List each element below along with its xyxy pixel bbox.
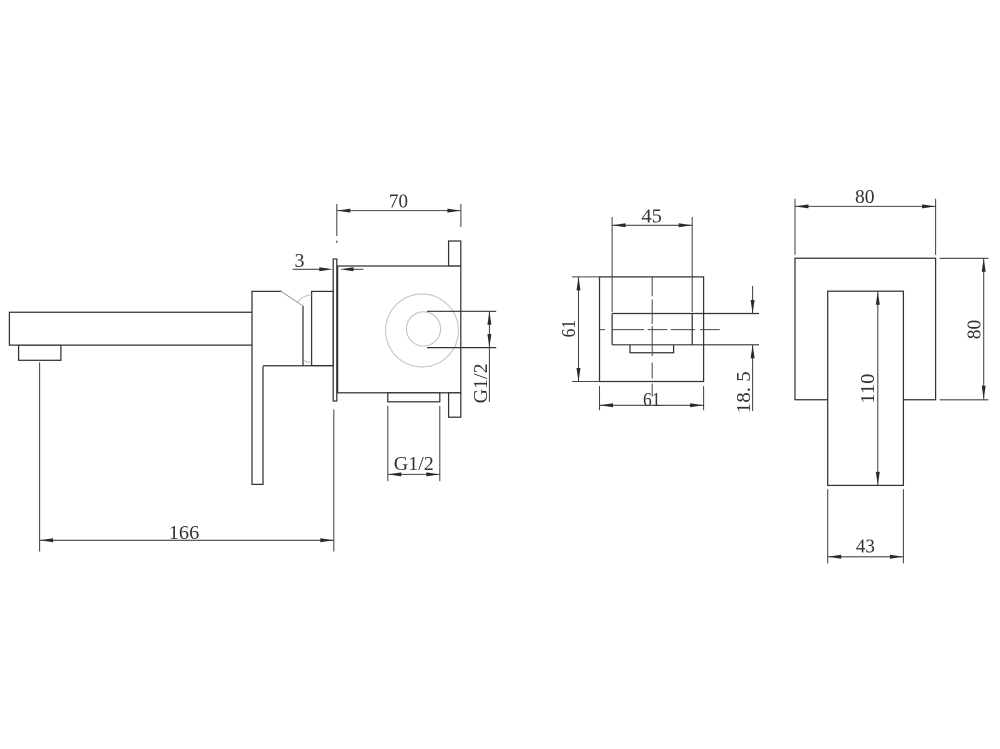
svg-text:110: 110 (857, 374, 879, 404)
svg-text:80: 80 (963, 320, 985, 340)
svg-text:70: 70 (389, 191, 408, 213)
svg-text:18. 5: 18. 5 (733, 371, 755, 413)
svg-text:166: 166 (169, 522, 200, 544)
svg-text:G1/2: G1/2 (470, 363, 492, 403)
svg-text:80: 80 (855, 186, 875, 208)
svg-text:3: 3 (295, 250, 305, 272)
svg-text:61: 61 (643, 389, 661, 411)
svg-text:61: 61 (558, 320, 580, 338)
svg-text:G1/2: G1/2 (394, 453, 434, 475)
svg-text:43: 43 (856, 535, 875, 557)
svg-text:45: 45 (641, 206, 662, 228)
